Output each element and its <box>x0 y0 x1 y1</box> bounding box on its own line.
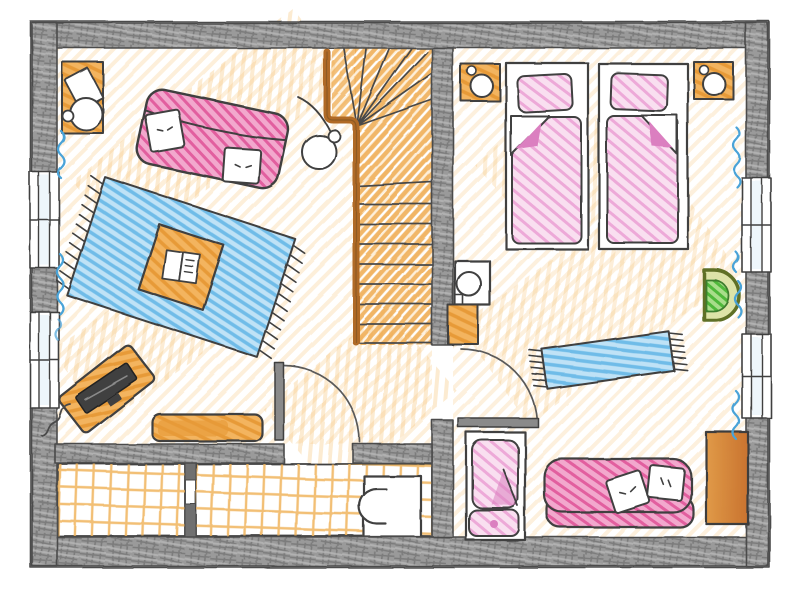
wall-left <box>32 23 57 566</box>
lamp-knob <box>700 66 709 75</box>
wall-middle-lower <box>432 420 453 537</box>
sofa-cushion-left <box>145 109 185 152</box>
window-right-upper <box>742 178 771 272</box>
table-lamp <box>457 272 481 296</box>
storage-left-tiles <box>58 464 185 536</box>
floor-plan-canvas <box>0 0 800 600</box>
sofa-cushion-right <box>223 147 261 183</box>
desk-with-chair <box>62 62 103 133</box>
wardrobe <box>706 432 748 524</box>
window-left-upper <box>30 172 59 268</box>
single-bed-right <box>599 64 688 249</box>
wall-top <box>32 23 768 48</box>
sideboard <box>152 414 262 441</box>
bed-pillow <box>610 73 667 111</box>
nightstand-right <box>694 62 733 99</box>
door-leaf <box>458 418 538 427</box>
nightstand-left <box>461 64 500 101</box>
daybed-pillow-right <box>647 465 684 500</box>
open-book <box>162 250 200 283</box>
green-semicircle-basin <box>704 270 739 320</box>
door-leaf <box>275 363 284 440</box>
lamp-knob <box>468 67 477 76</box>
window-right-lower <box>742 334 771 418</box>
storage-rooms <box>58 463 432 537</box>
floor-plan-drawing <box>0 0 800 600</box>
wall-interior-left <box>55 444 284 463</box>
crib-pillow-dot <box>490 520 498 528</box>
side-table-with-lamp <box>455 261 490 305</box>
bed-pillow <box>517 74 573 113</box>
washing-machine-door <box>360 489 386 524</box>
crib <box>466 432 525 540</box>
wall-right <box>746 23 768 566</box>
storage-partition-top <box>185 463 196 480</box>
desk-cup <box>63 111 74 122</box>
sideboard-shading <box>158 420 228 436</box>
single-bed-left <box>506 63 588 249</box>
washing-machine <box>360 476 421 537</box>
desk-chair <box>70 98 102 130</box>
wall-interior-right <box>353 444 432 463</box>
stair-flight <box>355 48 432 345</box>
floor-lamp-knob <box>328 130 340 142</box>
basin-bowl <box>706 280 729 311</box>
table-lamp <box>703 73 725 95</box>
storage-partition-bottom <box>185 504 196 537</box>
window-left-lower <box>30 312 59 408</box>
wall-middle-upper <box>432 48 453 345</box>
table-lamp <box>471 75 493 97</box>
small-cabinet <box>448 305 478 344</box>
stair-landing <box>332 48 356 122</box>
wall-bottom <box>32 537 768 566</box>
daybed <box>544 459 693 527</box>
